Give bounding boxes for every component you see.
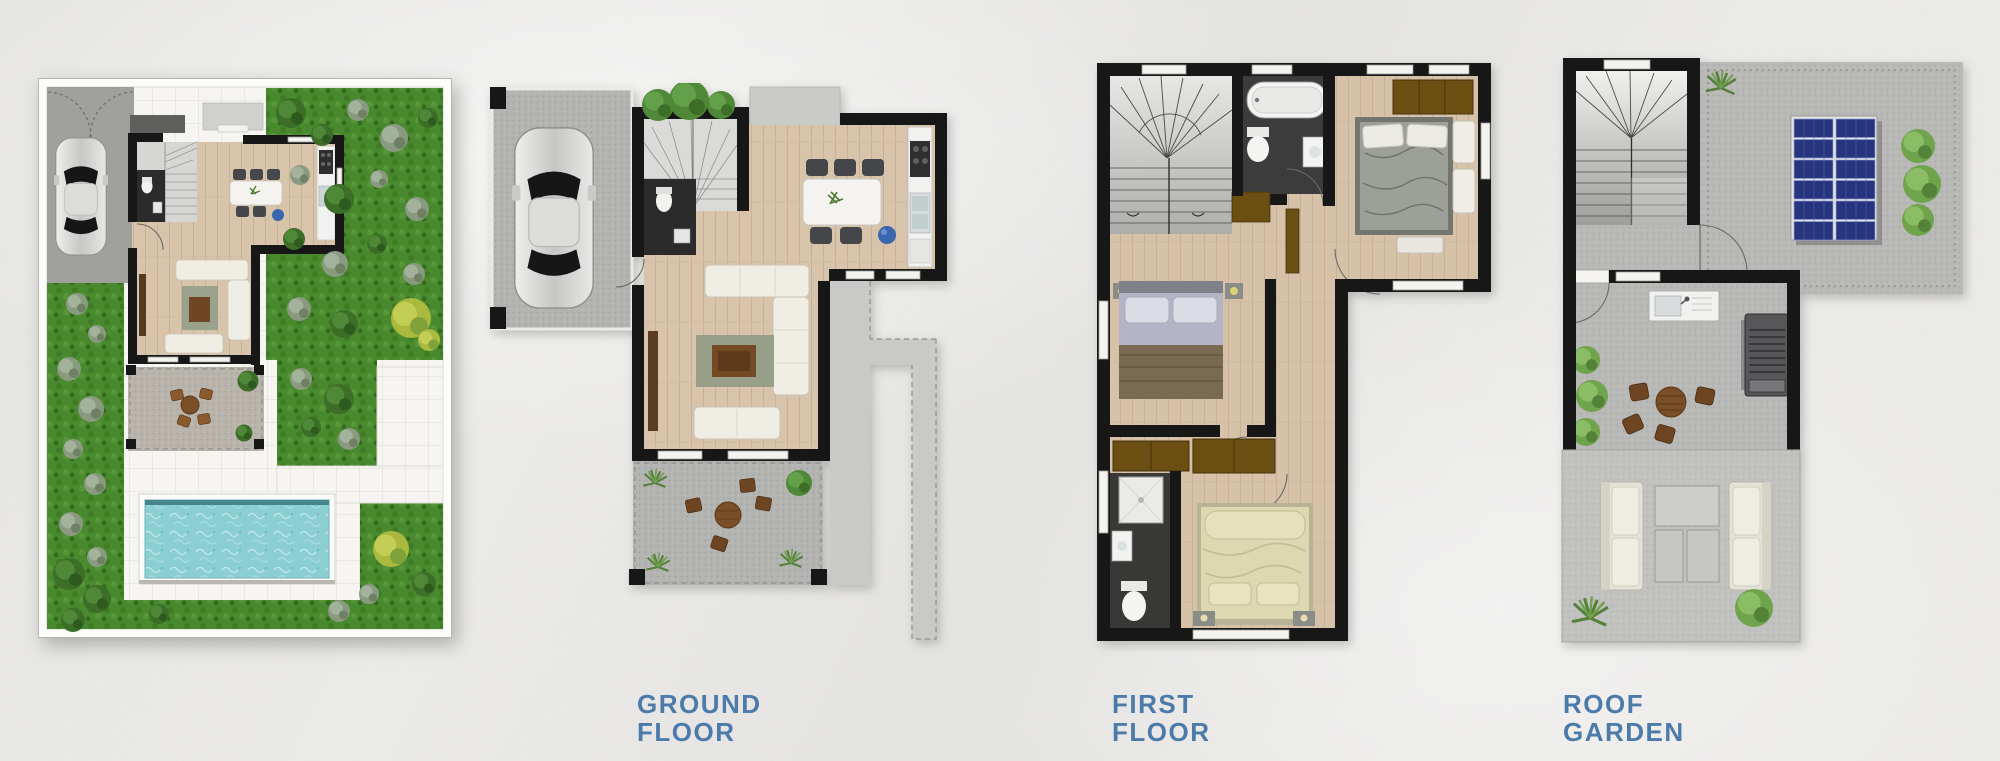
- dining-set-icon: [230, 169, 284, 221]
- bedroom-bottom: [1193, 503, 1315, 626]
- staircase-icon: [1110, 76, 1232, 234]
- hall-cabinet: [1232, 192, 1270, 222]
- sofa-icon: [1729, 482, 1771, 590]
- label-line: GARDEN: [1563, 718, 1685, 746]
- label-line: GROUND: [637, 690, 762, 718]
- terrace: [629, 461, 827, 585]
- hall-cabinet-tall: [1286, 209, 1299, 273]
- patio: [126, 365, 264, 451]
- label-line: FLOOR: [1112, 718, 1211, 746]
- bbq-grill-icon: [1741, 314, 1793, 396]
- swimming-pool: [139, 494, 335, 584]
- wc: [644, 179, 696, 255]
- wc: [137, 170, 165, 222]
- site-plan: [38, 78, 452, 638]
- side-path: [830, 281, 936, 639]
- plan-sheet: GROUND FLOOR FIRST FLOOR ROOF GARDEN: [0, 0, 2000, 761]
- bathroom: [1243, 76, 1331, 205]
- ground-floor-plan: [488, 83, 950, 645]
- car-icon: [54, 138, 108, 255]
- label-line: FIRST: [1112, 690, 1211, 718]
- sink-icon: [1649, 291, 1719, 321]
- shrub-row: [642, 83, 735, 121]
- label-roof-garden: ROOF GARDEN: [1563, 690, 1685, 746]
- coffee-table-icon: [1655, 486, 1719, 582]
- first-floor-plan: [1097, 63, 1492, 641]
- ensuite-bathroom: [1110, 471, 1181, 628]
- label-line: ROOF: [1563, 690, 1685, 718]
- lounge-area: [1562, 450, 1800, 642]
- roof-garden-plan: [1556, 58, 1966, 650]
- staircase-icon: [1576, 71, 1687, 225]
- car-icon: [512, 128, 596, 308]
- label-first-floor: FIRST FLOOR: [1112, 690, 1211, 746]
- solar-panels-icon: [1791, 116, 1882, 245]
- sofa-icon: [1601, 482, 1643, 590]
- kitchen: [908, 127, 932, 267]
- label-ground-floor: GROUND FLOOR: [637, 690, 762, 746]
- label-line: FLOOR: [637, 718, 762, 746]
